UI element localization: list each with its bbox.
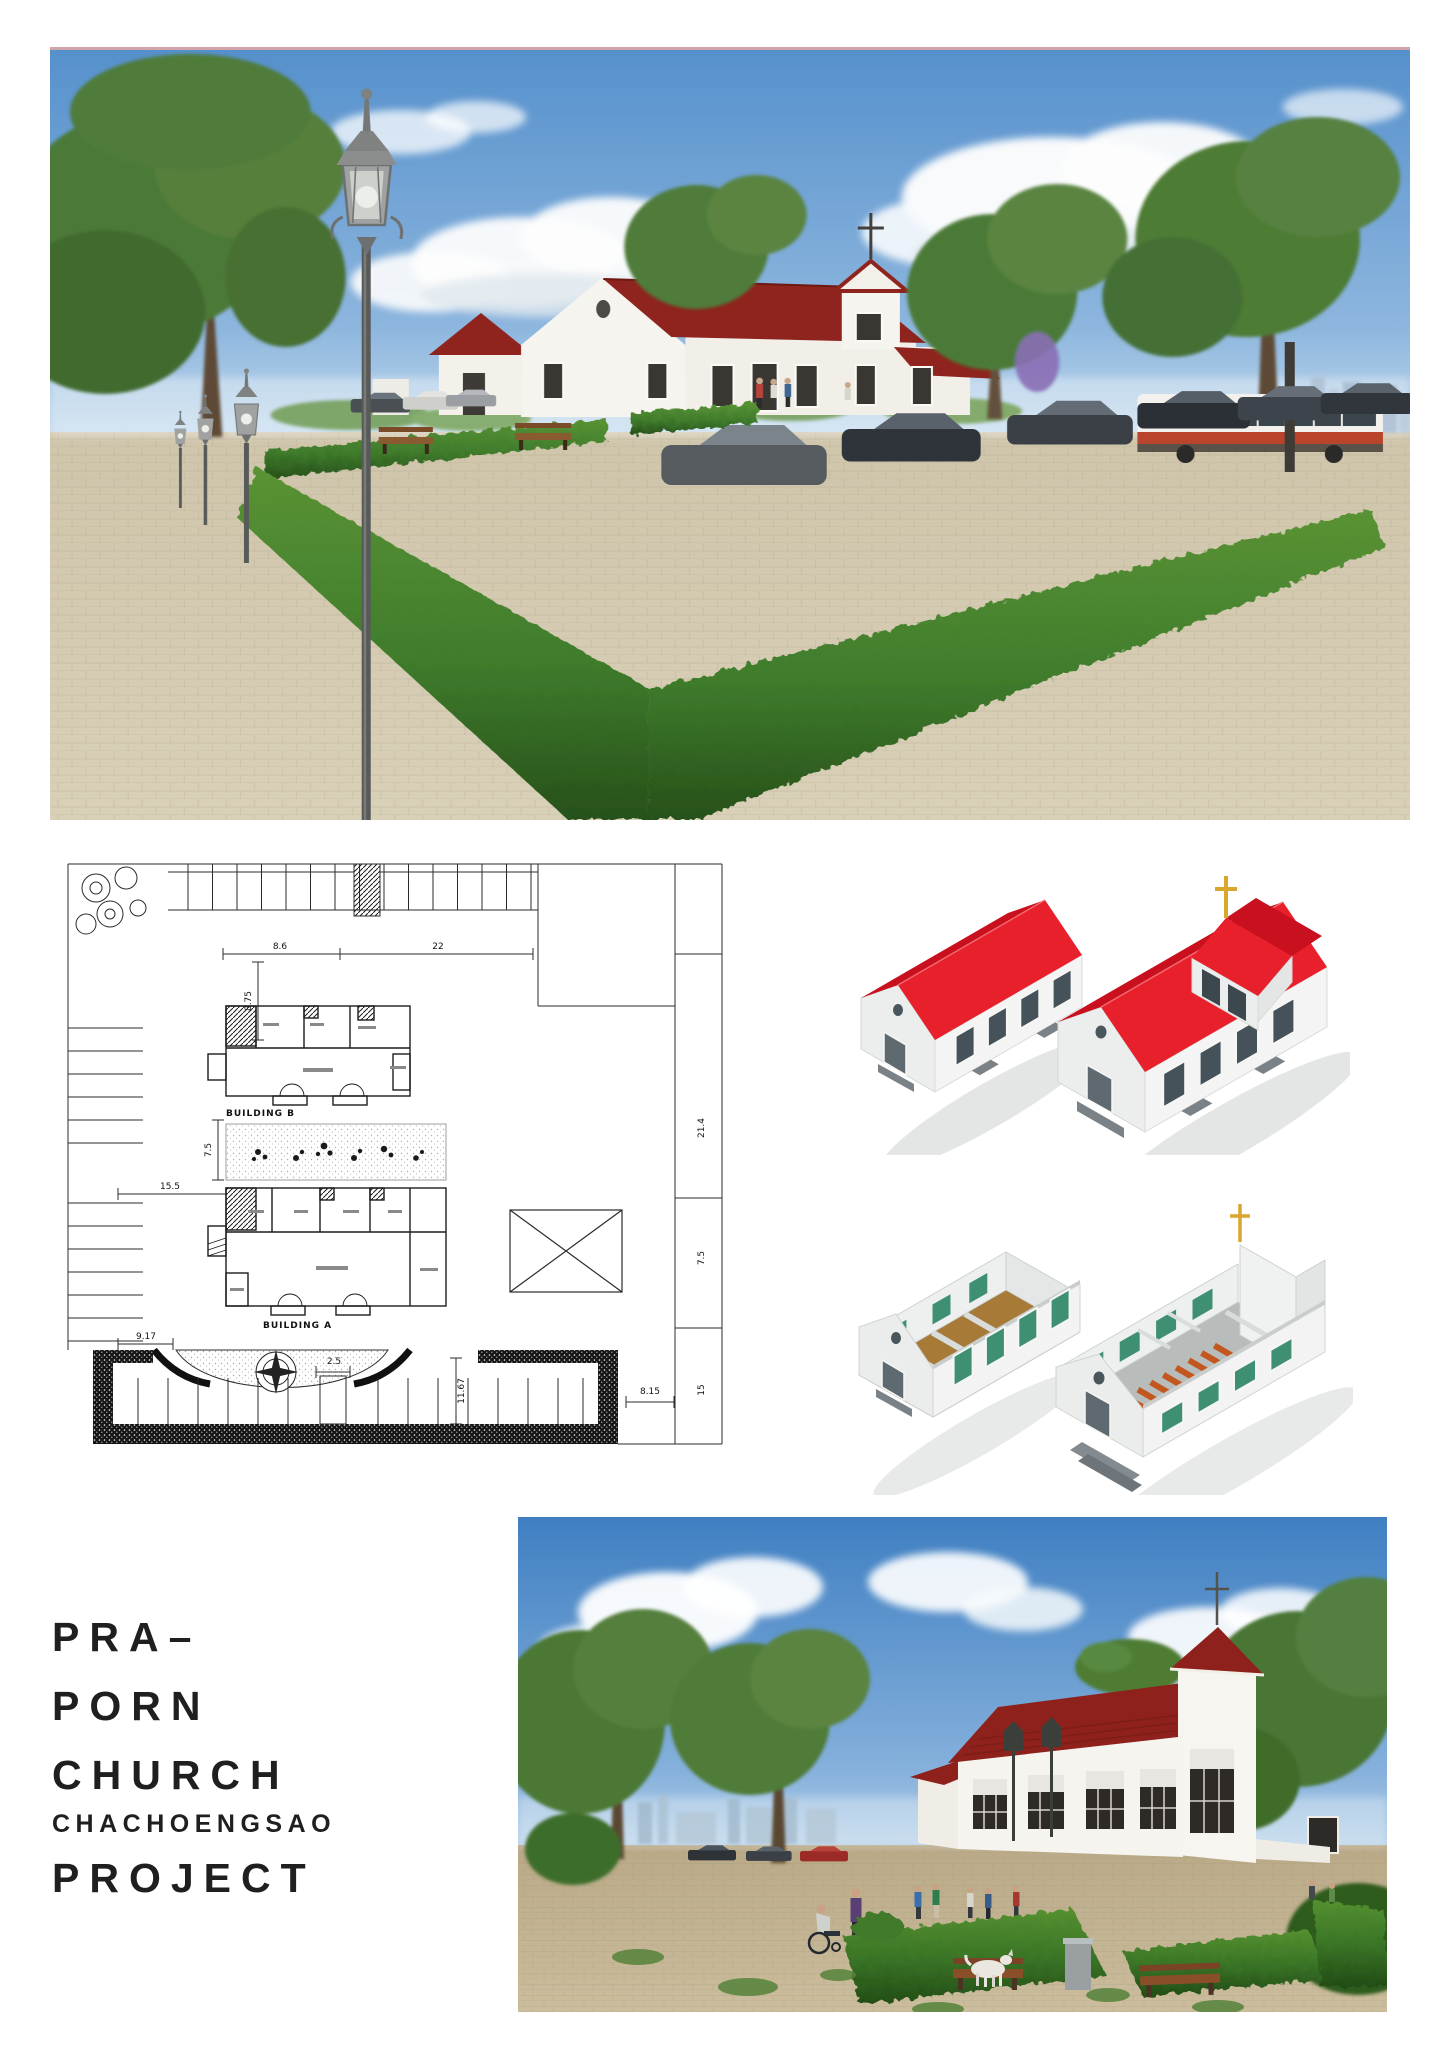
pedestal — [1063, 1938, 1093, 1990]
project-title: PRA– PORN CHURCH CHACHOENGSAO PROJECT — [52, 1616, 522, 1900]
site-plan-canvas: 8.6 22 8.75 7.5 15.5 9.17 2.5 11.67 8.15… — [58, 858, 755, 1450]
plaza-render-canvas — [518, 1517, 1387, 2012]
dim-top-right: 22 — [432, 942, 443, 952]
axon-exterior-canvas — [840, 860, 1350, 1155]
title-line-5: PROJECT — [52, 1857, 522, 1900]
background-cars — [688, 1845, 848, 1861]
purple-shrub — [1015, 332, 1059, 392]
dim-plaza-gap: 9.17 — [136, 1332, 156, 1342]
dim-east-gate: 8.15 — [640, 1387, 660, 1397]
title-line-1: PRA– — [52, 1616, 522, 1659]
axonometric-exterior — [840, 860, 1350, 1155]
planter — [354, 864, 380, 916]
photo-edge-artifact — [50, 47, 1410, 50]
dim-road-lower: 15 — [697, 1384, 707, 1395]
title-line-2: PORN — [52, 1685, 522, 1728]
title-line-3: CHURCH — [52, 1754, 522, 1797]
gable-vent — [596, 300, 610, 318]
building-b-label: BUILDING B — [226, 1109, 295, 1119]
cross-icon — [1230, 1204, 1250, 1242]
building-a-label: BUILDING A — [263, 1321, 332, 1331]
site-plan-drawing: 8.6 22 8.75 7.5 15.5 9.17 2.5 11.67 8.15… — [58, 858, 755, 1450]
axon-cutaway-canvas — [838, 1180, 1353, 1495]
dim-garden-vertical: 7.5 — [204, 1143, 214, 1157]
axonometric-cutaway — [838, 1180, 1353, 1495]
dim-plaza-depth: 11.67 — [457, 1378, 467, 1404]
garden-strip — [226, 1124, 446, 1180]
hero-render-canvas — [50, 47, 1410, 820]
dim-west-drive: 15.5 — [160, 1182, 180, 1192]
plaza-render — [518, 1517, 1387, 2012]
dim-road-upper: 21.4 — [697, 1118, 707, 1138]
cross-icon — [1215, 876, 1237, 918]
hero-exterior-render — [50, 47, 1410, 820]
dim-road-mid: 7.5 — [697, 1251, 707, 1265]
title-line-4: CHACHOENGSAO — [52, 1811, 522, 1837]
dim-top-left: 8.6 — [273, 942, 288, 952]
